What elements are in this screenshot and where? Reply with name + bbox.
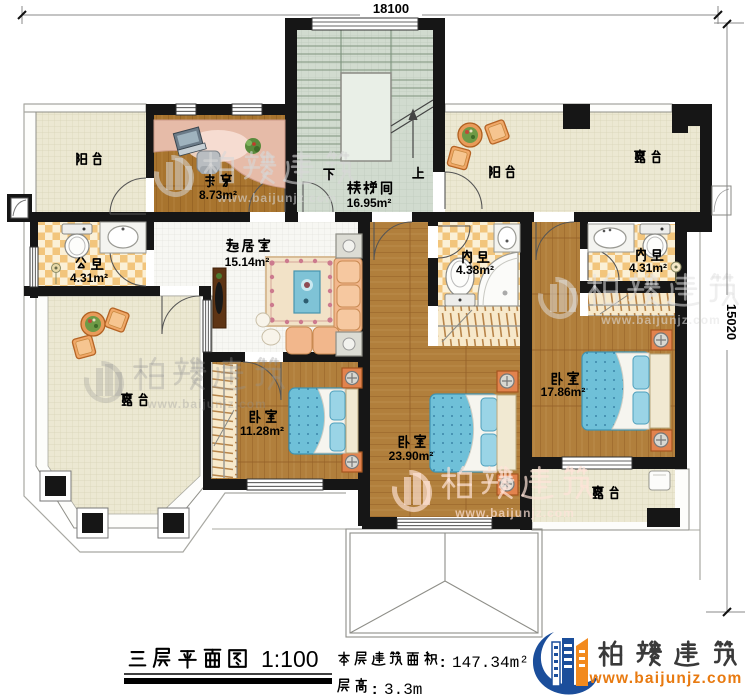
- svg-text::: :: [440, 654, 445, 671]
- svg-text:15020: 15020: [724, 304, 739, 340]
- svg-text:15.14m²: 15.14m²: [225, 255, 270, 269]
- svg-text:16.95m²: 16.95m²: [347, 196, 392, 210]
- svg-text:www.baijunjz.com: www.baijunjz.com: [589, 670, 743, 687]
- svg-text:11.28m²: 11.28m²: [240, 424, 284, 438]
- svg-text:www.baijunjz.com: www.baijunjz.com: [600, 313, 721, 327]
- svg-text:18100: 18100: [373, 1, 409, 16]
- svg-text:www.baijunjz.com: www.baijunjz.com: [454, 506, 575, 520]
- svg-text:23.90m²: 23.90m²: [389, 449, 434, 463]
- svg-text:147.34m²: 147.34m²: [452, 654, 529, 672]
- svg-text:8.73m²: 8.73m²: [199, 188, 237, 202]
- svg-text:4.31m²: 4.31m²: [70, 271, 108, 285]
- svg-text:4.31m²: 4.31m²: [629, 261, 667, 275]
- svg-text:www.baijunjz.com: www.baijunjz.com: [146, 397, 267, 411]
- svg-text:4.38m²: 4.38m²: [456, 263, 494, 277]
- svg-text:3.3m: 3.3m: [384, 681, 422, 699]
- svg-text::: :: [372, 681, 377, 698]
- svg-text:1:100: 1:100: [261, 646, 319, 672]
- svg-text:17.86m²: 17.86m²: [541, 385, 586, 399]
